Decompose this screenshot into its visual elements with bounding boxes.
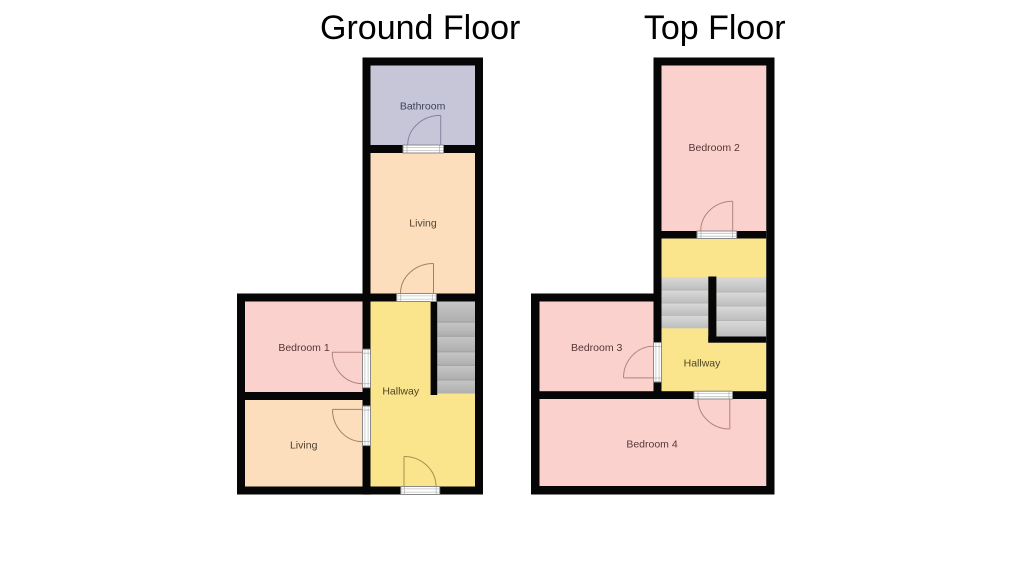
svg-text:Bedroom 1: Bedroom 1 — [278, 342, 330, 354]
svg-text:Hallway: Hallway — [382, 385, 420, 397]
svg-text:Top Floor: Top Floor — [644, 9, 786, 47]
svg-text:Bedroom 2: Bedroom 2 — [689, 142, 741, 154]
svg-text:Bedroom 3: Bedroom 3 — [571, 342, 623, 354]
svg-text:Hallway: Hallway — [684, 358, 722, 370]
svg-text:Bedroom 4: Bedroom 4 — [626, 438, 678, 450]
svg-text:Living: Living — [290, 439, 318, 451]
svg-text:Living: Living — [409, 218, 437, 230]
svg-text:Bathroom: Bathroom — [400, 101, 446, 113]
svg-text:Ground Floor: Ground Floor — [320, 9, 520, 47]
